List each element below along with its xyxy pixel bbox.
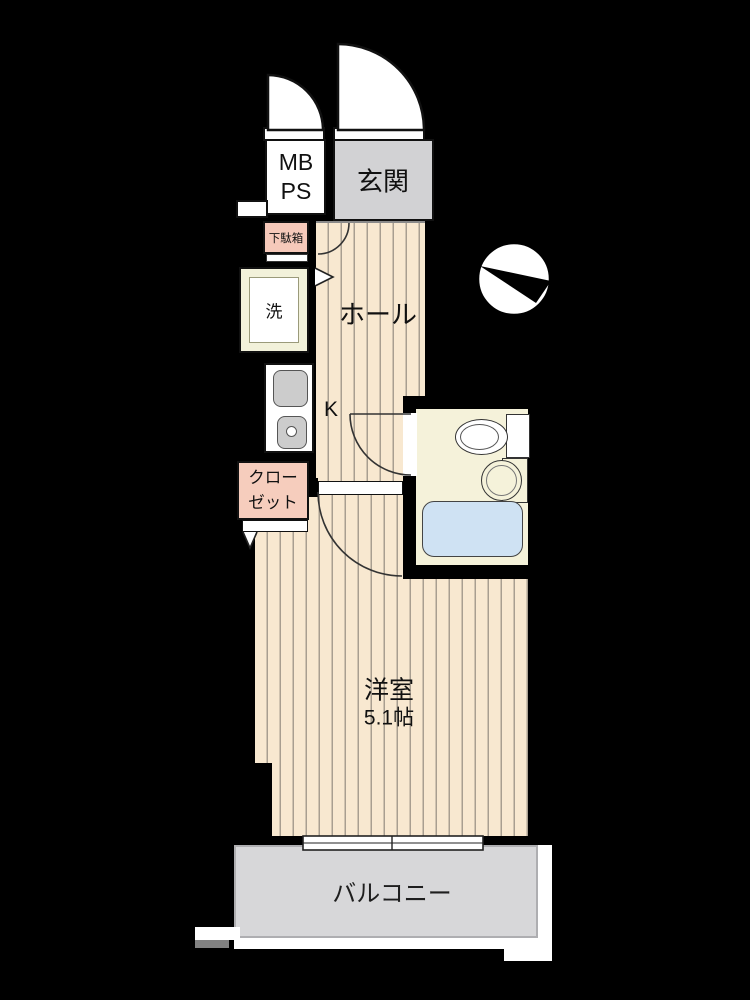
- toilet-tank-icon: [506, 414, 530, 458]
- kitchen-sink-icon: [273, 370, 308, 407]
- bathroom-door-opening: [403, 413, 417, 476]
- balcony-label: バルコニー: [332, 874, 452, 909]
- shoe-cabinet-label: 下駄箱: [269, 230, 304, 246]
- closet-door: [242, 520, 308, 532]
- balcony-step-left-shadow: [195, 940, 229, 948]
- stove-burner-icon: [286, 426, 297, 437]
- balcony-step-right: [504, 938, 552, 961]
- north-compass-icon: [478, 243, 551, 315]
- shoe-cabinet-shelf: [266, 254, 308, 262]
- floorplan-canvas: MB PS 玄関 下駄箱 洗 ホール K クロー ゼット 洋室 5.1帖 バルコ…: [0, 0, 750, 1000]
- balcony-edge-right: [538, 845, 552, 938]
- sink-inner: [486, 465, 517, 496]
- bathtub-icon: [422, 501, 523, 557]
- room-door-opening: [318, 481, 403, 495]
- mbps-door-swing: [268, 75, 323, 130]
- laundry-label: 洗: [266, 298, 283, 323]
- balcony-step-left: [195, 927, 240, 940]
- western-room-label: 洋室 5.1帖: [364, 677, 414, 732]
- entrance-label: 玄関: [357, 162, 409, 199]
- mbps-step: [236, 200, 268, 218]
- mbps-label: MB PS: [279, 148, 314, 206]
- wall-notch-bottom-left: [246, 763, 272, 844]
- toilet-bowl-inner: [460, 424, 499, 450]
- closet-label: クロー ゼット: [248, 466, 298, 516]
- balcony-edge-bottom: [234, 938, 504, 949]
- kitchen-label: K: [324, 398, 338, 422]
- hall-label: ホール: [339, 295, 417, 332]
- entrance-door-swing: [338, 44, 424, 130]
